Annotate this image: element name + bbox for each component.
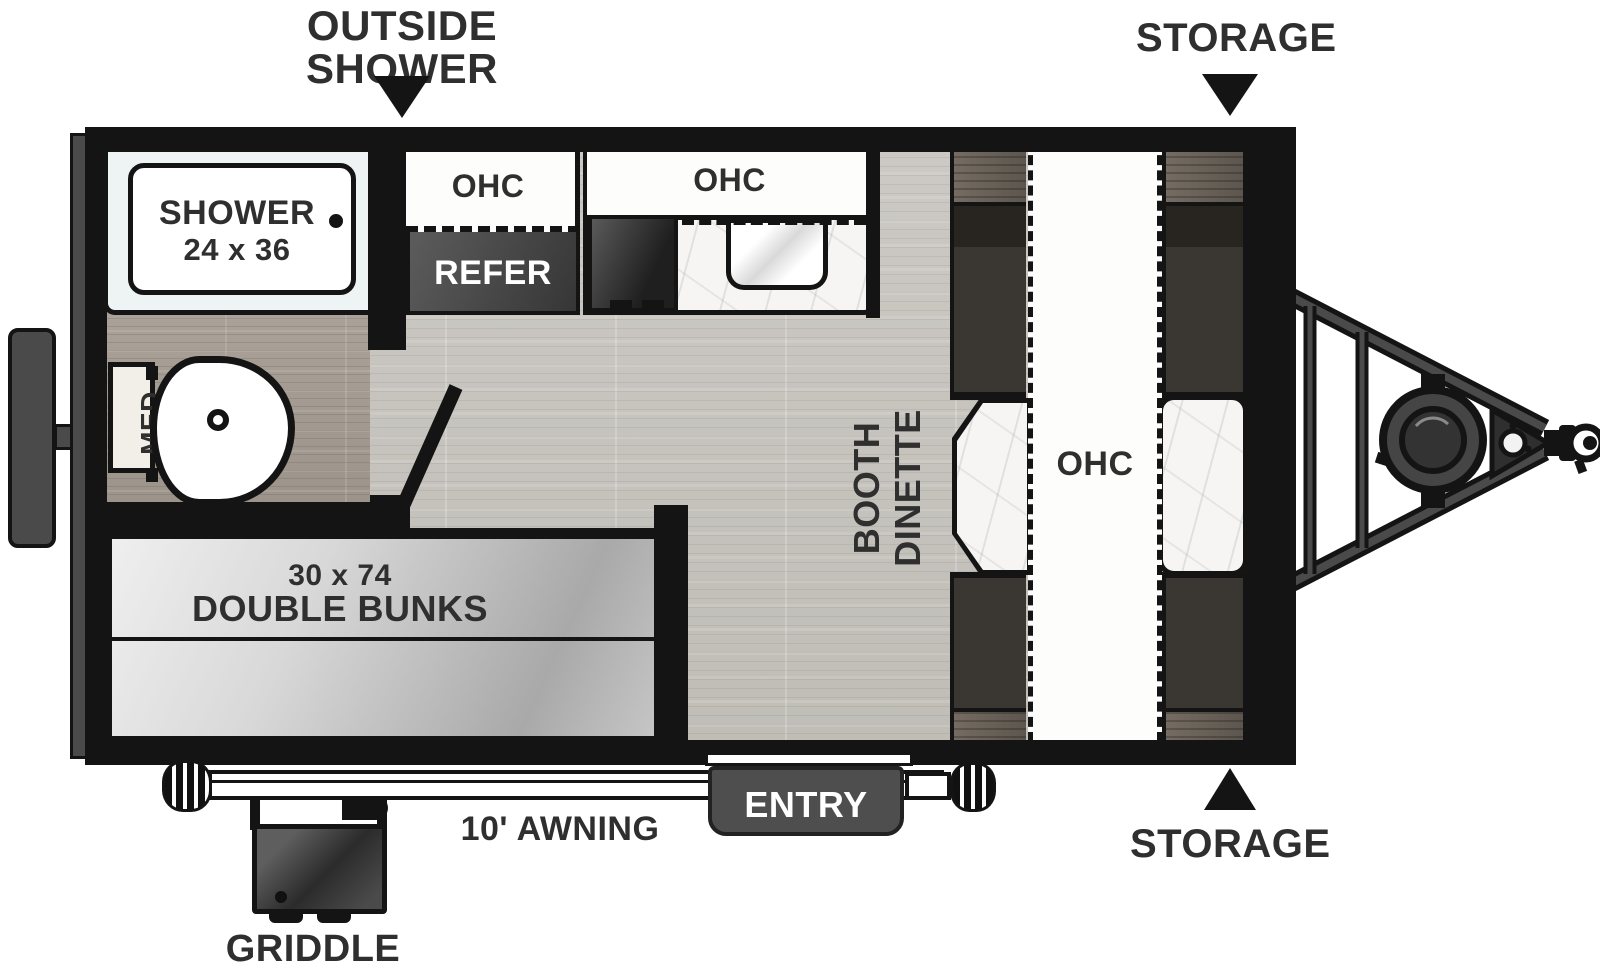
bottom-wall bbox=[85, 740, 1296, 765]
floorplan: OUTSIDE SHOWER STORAGE bbox=[0, 0, 1600, 968]
toilet-hinge bbox=[146, 366, 158, 380]
dinette-line1: BOOTH bbox=[846, 388, 887, 588]
outside-shower-line1: OUTSIDE bbox=[272, 4, 532, 47]
awning-arm-left bbox=[162, 760, 212, 812]
front-wall bbox=[1243, 127, 1296, 765]
awning-arm-right bbox=[950, 762, 996, 812]
dinette-bench-rear-top bbox=[950, 140, 1026, 400]
griddle bbox=[252, 824, 387, 914]
ohc-dinette-label: OHC bbox=[1033, 445, 1157, 484]
griddle-label: GRIDDLE bbox=[213, 928, 413, 968]
dinette-bench-front-top bbox=[1162, 140, 1243, 400]
bunk-wall-post bbox=[654, 505, 688, 743]
sink-icon bbox=[726, 218, 828, 290]
storage-bottom-arrow-icon bbox=[1204, 768, 1256, 810]
entry-label: ENTRY bbox=[712, 784, 900, 826]
ohc-left-label: OHC bbox=[406, 168, 570, 205]
shower-pan: SHOWER 24 x 36 bbox=[103, 140, 380, 315]
toilet-flush-icon bbox=[207, 409, 229, 431]
shower-drain-icon bbox=[329, 214, 343, 228]
toilet-hinge bbox=[146, 468, 158, 482]
trailer-hitch-icon bbox=[1280, 280, 1600, 600]
refrigerator: REFER bbox=[406, 232, 580, 315]
griddle-foot bbox=[269, 911, 303, 923]
bathroom-wall-vertical bbox=[368, 127, 406, 350]
stove-knob-icon bbox=[610, 300, 632, 312]
bunks-label: 30 x 74 DOUBLE BUNKS bbox=[140, 559, 540, 625]
entry-step bbox=[705, 752, 913, 766]
ohc-kitchen-label: OHC bbox=[587, 162, 872, 199]
griddle-latch bbox=[342, 796, 388, 820]
dinette-line2: DINETTE bbox=[887, 388, 928, 588]
shower-inner: SHOWER 24 x 36 bbox=[128, 163, 356, 295]
bunk-divider bbox=[112, 637, 658, 641]
dinette-table bbox=[952, 398, 1032, 575]
dinette-bench-rear-bottom bbox=[950, 572, 1026, 740]
dinette-table-front bbox=[1158, 395, 1248, 576]
storage-top-arrow-icon bbox=[1202, 74, 1258, 116]
top-wall bbox=[85, 127, 1296, 152]
dinette-bench-front-bottom bbox=[1162, 572, 1243, 740]
rear-bumper bbox=[8, 328, 56, 548]
bathroom-wall-bottom bbox=[85, 502, 410, 528]
stove-knob-icon bbox=[642, 300, 664, 312]
refer-label: REFER bbox=[410, 254, 576, 293]
double-bunks: 30 x 74 DOUBLE BUNKS bbox=[105, 528, 665, 743]
counter-end-panel bbox=[866, 140, 880, 318]
entry-door: ENTRY bbox=[708, 766, 904, 836]
door-jamb bbox=[370, 495, 410, 535]
griddle-foot bbox=[317, 911, 351, 923]
dinette-label: BOOTH DINETTE bbox=[846, 388, 938, 588]
rear-wall bbox=[85, 127, 107, 765]
shower-size: 24 x 36 bbox=[133, 232, 341, 268]
stove-icon bbox=[588, 215, 678, 312]
shower-label: SHOWER bbox=[133, 194, 341, 233]
awning-label: 10' AWNING bbox=[430, 810, 690, 849]
jack-icon bbox=[1501, 431, 1525, 455]
awning-arm-link bbox=[905, 772, 951, 800]
griddle-knob-icon bbox=[275, 891, 287, 903]
storage-bottom-label: STORAGE bbox=[1130, 822, 1330, 867]
ohc-overhang-dashes bbox=[682, 219, 866, 225]
bunks-name: DOUBLE BUNKS bbox=[140, 592, 540, 625]
overhead-cabinet-left: OHC bbox=[406, 140, 580, 232]
storage-top-label: STORAGE bbox=[1136, 16, 1336, 61]
overhead-cabinet-dinette: OHC bbox=[1028, 140, 1162, 742]
outside-shower-arrow-icon bbox=[374, 76, 430, 118]
